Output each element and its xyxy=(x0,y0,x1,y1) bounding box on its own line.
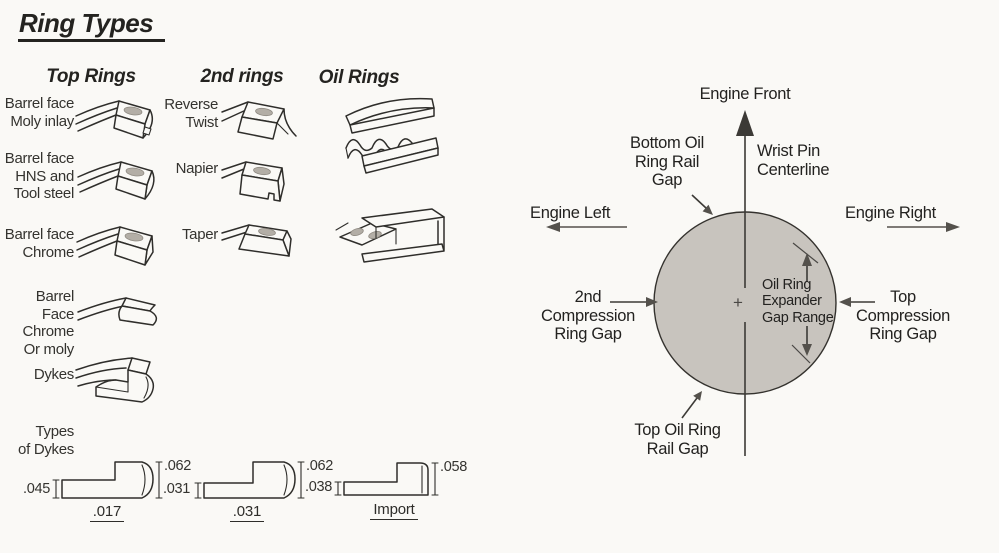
engine-right-label: Engine Right xyxy=(845,204,945,223)
dykes-ring-drawing xyxy=(76,356,164,410)
cross-section-import xyxy=(334,457,446,503)
engine-front-arrow xyxy=(736,110,754,136)
barrel-face-moly-ring-drawing xyxy=(76,97,160,145)
cross-section-031 xyxy=(194,455,306,505)
cross-section-label-031: .031 xyxy=(224,503,270,520)
ring-label-barrel-moly: Barrel face Moly inlay xyxy=(0,95,74,130)
engine-front-label: Engine Front xyxy=(678,85,812,104)
engine-left-arrow xyxy=(546,222,560,232)
wrist-pin-centerline-label: Wrist Pin Centerline xyxy=(757,142,867,179)
oil-ring-expander-drawing xyxy=(334,92,448,180)
ring-label-chrome-moly: Barrel Face Chrome Or moly xyxy=(0,288,74,359)
second-compression-gap-label: 2nd Compression Ring Gap xyxy=(538,288,638,344)
ring-label-barrel-chrome: Barrel face Chrome xyxy=(0,226,74,261)
page-title: Ring Types xyxy=(18,8,165,42)
chrome-or-moly-ring-drawing xyxy=(78,296,162,338)
barrel-face-hns-ring-drawing xyxy=(78,158,162,206)
top-oil-gap-arrow xyxy=(693,391,702,401)
column-header-oil-rings: Oil Rings xyxy=(304,67,414,89)
dimension-left-import: .038 xyxy=(298,479,332,495)
ring-label-dykes: Dykes xyxy=(0,366,74,384)
ring-label-reverse-twist: Reverse Twist xyxy=(150,96,218,131)
piston-center-mark: + xyxy=(731,294,745,311)
cross-section-017 xyxy=(52,455,164,505)
cross-section-label-017: .017 xyxy=(84,503,130,520)
column-header-2nd-rings: 2nd rings xyxy=(187,66,297,88)
barrel-face-chrome-ring-drawing xyxy=(77,222,161,272)
taper-ring-drawing xyxy=(222,220,302,270)
page-title-wrap: Ring Types xyxy=(18,8,165,39)
engine-right-arrow xyxy=(946,222,960,232)
ring-label-types-of-dykes: Types of Dykes xyxy=(0,423,74,458)
dimension-left-031: .031 xyxy=(156,481,190,497)
column-header-top-rings: Top Rings xyxy=(36,66,146,88)
scanned-manual-page: Ring Types Top Rings 2nd rings Oil Rings… xyxy=(0,0,999,553)
dimension-right-import: .058 xyxy=(440,459,476,475)
napier-ring-drawing xyxy=(222,156,300,212)
top-oil-gap-label: Top Oil Ring Rail Gap xyxy=(625,421,730,458)
bottom-oil-gap-label: Bottom Oil Ring Rail Gap xyxy=(617,134,717,190)
top-compression-gap-label: Top Compression Ring Gap xyxy=(853,288,953,344)
cross-section-label-import: Import xyxy=(363,501,425,518)
oil-ring-rail-drawing xyxy=(334,204,450,274)
reverse-twist-ring-drawing xyxy=(222,96,302,142)
oil-expander-gap-label: Oil Ring Expander Gap Range xyxy=(762,277,842,326)
ring-label-barrel-hns: Barrel face HNS and Tool steel xyxy=(0,150,74,203)
dimension-left-017: .045 xyxy=(16,481,50,497)
engine-left-label: Engine Left xyxy=(530,204,630,223)
